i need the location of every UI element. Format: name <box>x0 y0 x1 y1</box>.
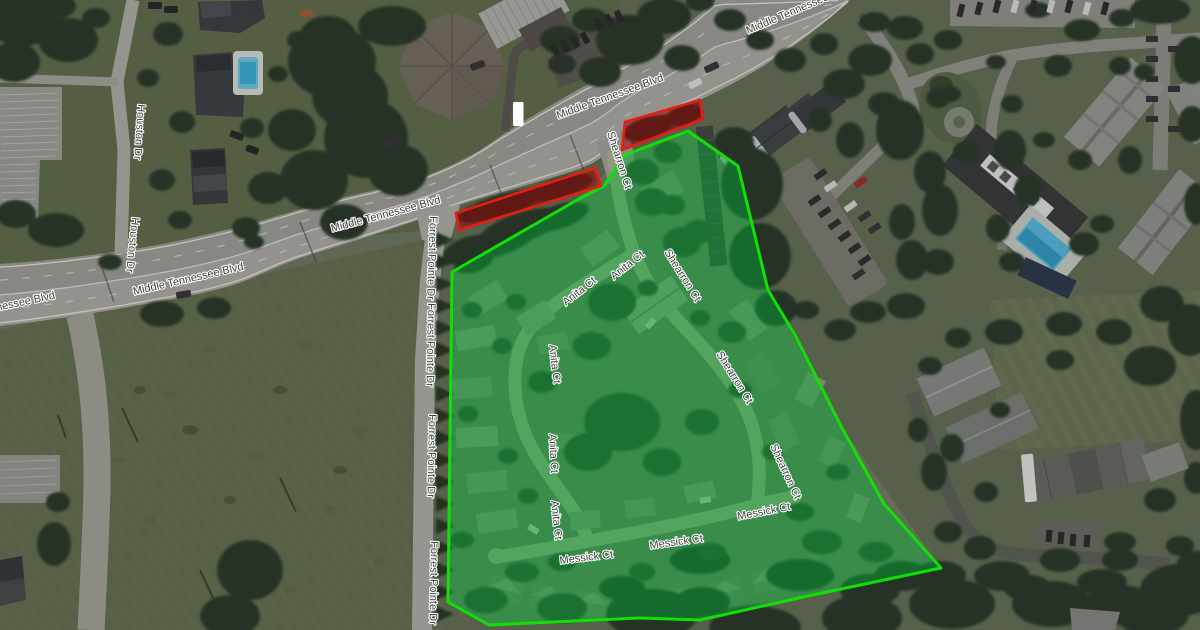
svg-text:Forrest Pointe Dr: Forrest Pointe Dr <box>427 541 440 625</box>
svg-text:Forrest Pointe Dr: Forrest Pointe Dr <box>425 414 438 498</box>
svg-text:Forrest Pointe Dr: Forrest Pointe Dr <box>424 303 437 387</box>
svg-text:Anita Ct: Anita Ct <box>546 434 560 474</box>
